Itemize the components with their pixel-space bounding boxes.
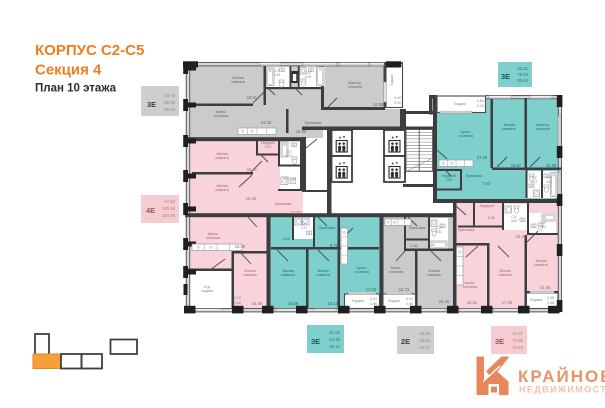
svg-text:комната: комната (502, 127, 516, 131)
svg-text:гостиная: гостиная (459, 134, 474, 138)
svg-text:2.42: 2.42 (477, 104, 484, 108)
svg-text:гостиная: гостиная (463, 285, 478, 289)
svg-text:комната: комната (281, 273, 295, 277)
svg-text:15.14: 15.14 (328, 301, 339, 306)
svg-text:4Е: 4Е (146, 206, 155, 215)
svg-text:24.80: 24.80 (373, 102, 384, 107)
svg-text:5.62: 5.62 (540, 225, 546, 229)
svg-text:комната: комната (215, 156, 229, 160)
svg-text:Лоджия: Лоджия (390, 74, 394, 86)
svg-text:18.91: 18.91 (247, 95, 258, 100)
svg-text:Прихожая: Прихожая (275, 202, 292, 206)
svg-text:2.41: 2.41 (301, 226, 307, 230)
svg-text:Секция 4: Секция 4 (35, 62, 102, 79)
svg-text:13.69: 13.69 (540, 285, 551, 290)
svg-text:15.69: 15.69 (288, 301, 299, 306)
svg-text:Лоджия: Лоджия (352, 299, 364, 303)
svg-text:комната: комната (498, 273, 512, 277)
svg-text:гостиная: гостиная (206, 236, 221, 240)
svg-text:7.53: 7.53 (482, 181, 491, 186)
svg-text:4.08: 4.08 (305, 75, 312, 79)
svg-text:лоджия: лоджия (201, 289, 213, 293)
svg-text:комната: комната (231, 80, 245, 84)
svg-text:Лоджия: Лоджия (530, 298, 542, 302)
svg-text:комната: комната (427, 273, 441, 277)
svg-text:комната: комната (243, 273, 257, 277)
svg-text:23.48: 23.48 (235, 244, 246, 249)
svg-text:План 10 этажа: План 10 этажа (35, 83, 117, 95)
svg-text:комната: комната (316, 273, 330, 277)
svg-text:79.42: 79.42 (517, 72, 528, 77)
svg-text:27.20: 27.20 (477, 155, 488, 160)
svg-text:3.21: 3.21 (406, 297, 413, 301)
svg-text:1.66: 1.66 (406, 302, 413, 306)
svg-text:2.20: 2.20 (394, 101, 401, 105)
svg-text:12.60: 12.60 (296, 129, 307, 134)
svg-text:гостиная: гостиная (214, 114, 229, 118)
svg-text:66.12: 66.12 (329, 344, 340, 349)
svg-text:18.38: 18.38 (546, 163, 557, 168)
svg-text:2.03: 2.03 (446, 178, 452, 182)
svg-text:17.63: 17.63 (366, 287, 377, 292)
svg-text:Прихожая: Прихожая (305, 121, 322, 125)
svg-text:100.39: 100.39 (162, 206, 176, 211)
svg-text:17.38: 17.38 (502, 300, 513, 305)
svg-text:16.87: 16.87 (511, 163, 522, 168)
svg-text:3.07: 3.07 (531, 180, 537, 184)
svg-text:31.02: 31.02 (329, 330, 340, 335)
svg-text:15.65: 15.65 (252, 301, 263, 306)
svg-text:3Е: 3Е (147, 100, 156, 109)
svg-text:4.64: 4.64 (283, 237, 290, 241)
svg-text:Прихожая: Прихожая (409, 226, 426, 230)
svg-text:Прихожая: Прихожая (458, 228, 475, 232)
svg-text:15.23: 15.23 (419, 331, 430, 336)
svg-text:9.72: 9.72 (330, 243, 339, 248)
svg-text:комната: комната (215, 188, 229, 192)
svg-text:64.46: 64.46 (329, 337, 340, 342)
svg-text:2.01: 2.01 (265, 145, 271, 149)
svg-text:4.28: 4.28 (274, 73, 281, 77)
svg-text:4.54: 4.54 (546, 180, 552, 184)
svg-text:4.40: 4.40 (394, 96, 401, 100)
svg-text:КРАЙНОВ: КРАЙНОВ (518, 367, 605, 386)
svg-text:комната: комната (534, 263, 548, 267)
svg-text:33.31: 33.31 (517, 66, 528, 71)
svg-text:15.41: 15.41 (247, 167, 258, 172)
svg-text:40.51: 40.51 (419, 338, 430, 343)
svg-text:гостиная: гостиная (389, 270, 404, 274)
svg-text:5.13: 5.13 (234, 296, 241, 300)
svg-text:3Е: 3Е (495, 337, 504, 346)
svg-text:4.06: 4.06 (488, 216, 495, 220)
svg-text:3.31: 3.31 (370, 297, 377, 301)
svg-text:Лоджия: Лоджия (454, 102, 466, 106)
svg-text:Лоджия: Лоджия (388, 299, 400, 303)
svg-text:НЕДВИЖИМОСТЬ: НЕДВИЖИМОСТЬ (519, 385, 605, 395)
svg-text:1.68: 1.68 (547, 301, 554, 305)
svg-text:спальня: спальня (536, 127, 550, 131)
svg-text:КОРПУС С2-С5: КОРПУС С2-С5 (35, 42, 144, 59)
svg-text:15.73: 15.73 (399, 287, 410, 292)
svg-text:Прихожая: Прихожая (319, 226, 336, 230)
svg-text:15.25: 15.25 (439, 299, 450, 304)
svg-text:23.32: 23.32 (261, 120, 272, 125)
svg-text:42.17: 42.17 (419, 345, 430, 350)
svg-text:4.60: 4.60 (234, 301, 241, 305)
svg-text:74.48: 74.48 (512, 345, 523, 350)
svg-text:3.35: 3.35 (547, 296, 554, 300)
svg-text:47.52: 47.52 (164, 199, 175, 204)
svg-text:4.62: 4.62 (436, 230, 442, 234)
svg-text:88.02: 88.02 (164, 100, 175, 105)
svg-text:43.78: 43.78 (164, 93, 175, 98)
svg-text:4.74: 4.74 (286, 154, 292, 158)
svg-text:19.01: 19.01 (467, 300, 478, 305)
svg-text:31.07: 31.07 (512, 331, 523, 336)
svg-text:2Е: 2Е (401, 337, 410, 346)
svg-text:С/У 3.82: С/У 3.82 (284, 177, 297, 181)
svg-text:83.64: 83.64 (517, 78, 528, 83)
svg-text:104.99: 104.99 (162, 213, 176, 218)
svg-text:10.49: 10.49 (516, 234, 527, 239)
svg-text:3.50: 3.50 (511, 219, 517, 223)
svg-text:72.80: 72.80 (512, 338, 523, 343)
svg-text:Прихожая: Прихожая (466, 174, 483, 178)
svg-text:4.84: 4.84 (477, 99, 484, 103)
svg-text:гостиная: гостиная (355, 270, 370, 274)
svg-text:12.82: 12.82 (291, 210, 302, 215)
svg-text:4.36: 4.36 (411, 244, 418, 248)
svg-text:спальня: спальня (348, 85, 362, 89)
svg-text:15.46: 15.46 (246, 196, 257, 201)
svg-text:3Е: 3Е (311, 337, 320, 346)
svg-text:1.66: 1.66 (370, 302, 377, 306)
svg-text:Гардероб: Гардероб (480, 204, 495, 208)
svg-text:90.22: 90.22 (164, 107, 175, 112)
svg-text:3Е: 3Е (501, 72, 510, 81)
